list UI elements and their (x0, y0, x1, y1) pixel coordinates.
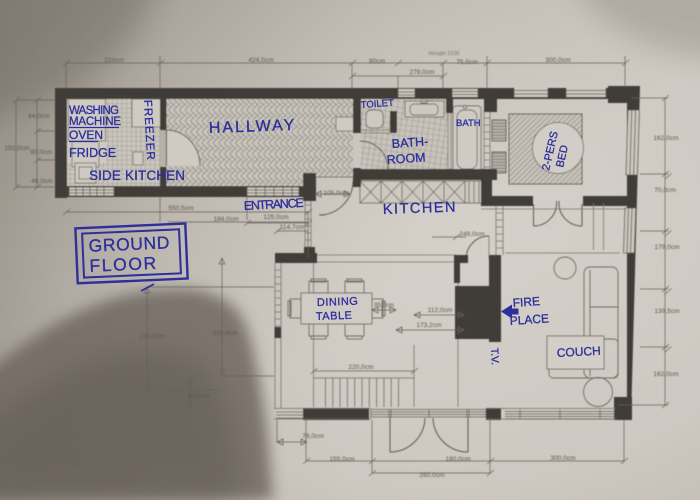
svg-text:180,0cm: 180,0cm (445, 456, 471, 463)
svg-text:279,0cm: 279,0cm (409, 69, 435, 76)
svg-text:GROUND: GROUND (88, 232, 170, 256)
svg-text:105,0cm: 105,0cm (323, 190, 349, 197)
svg-text:76,0cm: 76,0cm (302, 433, 324, 440)
svg-text:210cm: 210cm (104, 57, 124, 64)
svg-text:162,0cm: 162,0cm (653, 371, 679, 378)
svg-text:210,0cm: 210,0cm (139, 333, 165, 340)
svg-text:80,0cm: 80,0cm (30, 149, 52, 156)
svg-text:70,0cm: 70,0cm (654, 187, 676, 194)
svg-text:184,0cm: 184,0cm (213, 216, 239, 223)
svg-text:TOILET: TOILET (360, 98, 394, 111)
svg-text:MACHINE: MACHINE (69, 116, 121, 128)
svg-text:SIDE KITCHEN: SIDE KITCHEN (89, 168, 185, 183)
svg-text:112,0cm: 112,0cm (428, 307, 453, 314)
svg-text:BATH-: BATH- (391, 134, 428, 151)
svg-text:OVEN: OVEN (69, 128, 103, 142)
svg-text:333,0cm: 333,0cm (212, 330, 238, 337)
svg-text:139,5cm: 139,5cm (654, 308, 680, 315)
svg-text:173,2cm: 173,2cm (416, 322, 442, 329)
svg-text:ROOM: ROOM (386, 150, 426, 167)
svg-text:FRIDGE: FRIDGE (69, 146, 116, 160)
svg-text:220,0cm: 220,0cm (348, 364, 374, 371)
svg-text:75,0cm: 75,0cm (456, 59, 478, 66)
svg-text:162,0cm: 162,0cm (653, 135, 679, 142)
svg-text:FLOOR: FLOOR (89, 253, 158, 276)
svg-text:550,5cm: 550,5cm (168, 205, 194, 212)
svg-text:155,0cm: 155,0cm (329, 456, 355, 463)
svg-text:125,0cm: 125,0cm (263, 214, 289, 221)
svg-text:64,0cm: 64,0cm (188, 393, 210, 400)
svg-text:95,0cm: 95,0cm (374, 303, 394, 309)
svg-text:260,0cm: 260,0cm (419, 472, 445, 479)
svg-text:DINING: DINING (317, 296, 359, 309)
svg-text:80cm: 80cm (369, 58, 386, 65)
svg-text:424,0cm: 424,0cm (248, 57, 274, 64)
svg-text:BATH: BATH (456, 118, 481, 129)
svg-text:179,0cm: 179,0cm (654, 244, 680, 251)
svg-text:FIRE: FIRE (512, 294, 540, 310)
svg-text:249,0cm: 249,0cm (459, 231, 485, 238)
svg-text:48,0cm: 48,0cm (31, 178, 53, 185)
svg-text:192,0cm: 192,0cm (4, 145, 30, 152)
svg-text:114,7cm: 114,7cm (280, 224, 305, 231)
svg-text:300,0cm: 300,0cm (545, 57, 571, 64)
svg-text:64,0cm: 64,0cm (28, 113, 50, 120)
svg-text:COUCH: COUCH (556, 344, 601, 360)
svg-text:TABLE: TABLE (316, 310, 353, 323)
svg-text:300,0cm: 300,0cm (550, 455, 576, 462)
svg-text:HALLWAY: HALLWAY (209, 117, 297, 137)
svg-text:T.V.: T.V. (488, 348, 501, 366)
svg-text:Hoogte 2230: Hoogte 2230 (429, 51, 460, 57)
svg-text:KITCHEN: KITCHEN (383, 199, 458, 218)
